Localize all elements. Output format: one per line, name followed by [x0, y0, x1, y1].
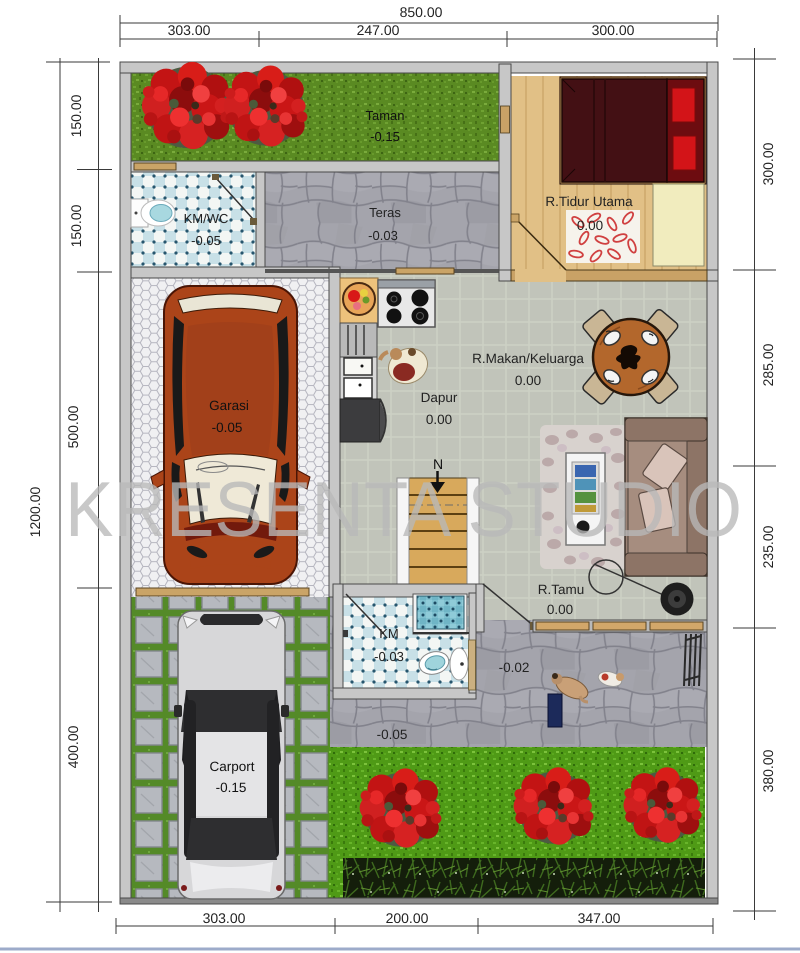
svg-text:KM/WC: KM/WC — [184, 211, 229, 226]
svg-text:Dapur: Dapur — [421, 390, 458, 405]
svg-text:R.Makan/Keluarga: R.Makan/Keluarga — [472, 351, 584, 366]
svg-text:Taman: Taman — [365, 108, 404, 123]
svg-text:1200.00: 1200.00 — [27, 486, 43, 537]
svg-text:303.00: 303.00 — [203, 910, 246, 926]
svg-text:300.00: 300.00 — [760, 142, 776, 185]
svg-text:0.00: 0.00 — [547, 602, 573, 617]
svg-text:-0.05: -0.05 — [212, 420, 243, 435]
svg-text:Teras: Teras — [369, 205, 401, 220]
svg-text:R.Tamu: R.Tamu — [538, 582, 585, 597]
svg-text:-0.15: -0.15 — [216, 780, 247, 795]
svg-text:303.00: 303.00 — [168, 22, 211, 38]
svg-text:Carport: Carport — [209, 759, 254, 774]
svg-text:247.00: 247.00 — [357, 22, 400, 38]
svg-text:150.00: 150.00 — [68, 94, 84, 137]
svg-text:150.00: 150.00 — [68, 204, 84, 247]
svg-text:-0.03: -0.03 — [374, 649, 404, 664]
svg-text:850.00: 850.00 — [400, 4, 443, 20]
svg-text:285.00: 285.00 — [760, 343, 776, 386]
svg-text:Garasi: Garasi — [209, 398, 249, 413]
svg-text:R.Tidur Utama: R.Tidur Utama — [545, 194, 633, 209]
svg-text:KM: KM — [379, 626, 399, 641]
svg-text:235.00: 235.00 — [760, 525, 776, 568]
svg-text:KRESENTA STUDIO: KRESENTA STUDIO — [65, 465, 742, 553]
svg-text:-0.05: -0.05 — [377, 727, 408, 742]
svg-text:300.00: 300.00 — [592, 22, 635, 38]
svg-text:-0.02: -0.02 — [499, 660, 530, 675]
svg-text:-0.03: -0.03 — [368, 228, 398, 243]
svg-text:0.00: 0.00 — [515, 373, 541, 388]
svg-text:0.00: 0.00 — [426, 412, 452, 427]
svg-text:0.00: 0.00 — [577, 218, 603, 233]
svg-text:380.00: 380.00 — [760, 749, 776, 792]
svg-text:-0.15: -0.15 — [370, 129, 400, 144]
svg-text:400.00: 400.00 — [65, 725, 81, 768]
svg-text:347.00: 347.00 — [578, 910, 621, 926]
svg-text:-0.05: -0.05 — [191, 233, 221, 248]
svg-text:500.00: 500.00 — [65, 405, 81, 448]
svg-text:200.00: 200.00 — [386, 910, 429, 926]
